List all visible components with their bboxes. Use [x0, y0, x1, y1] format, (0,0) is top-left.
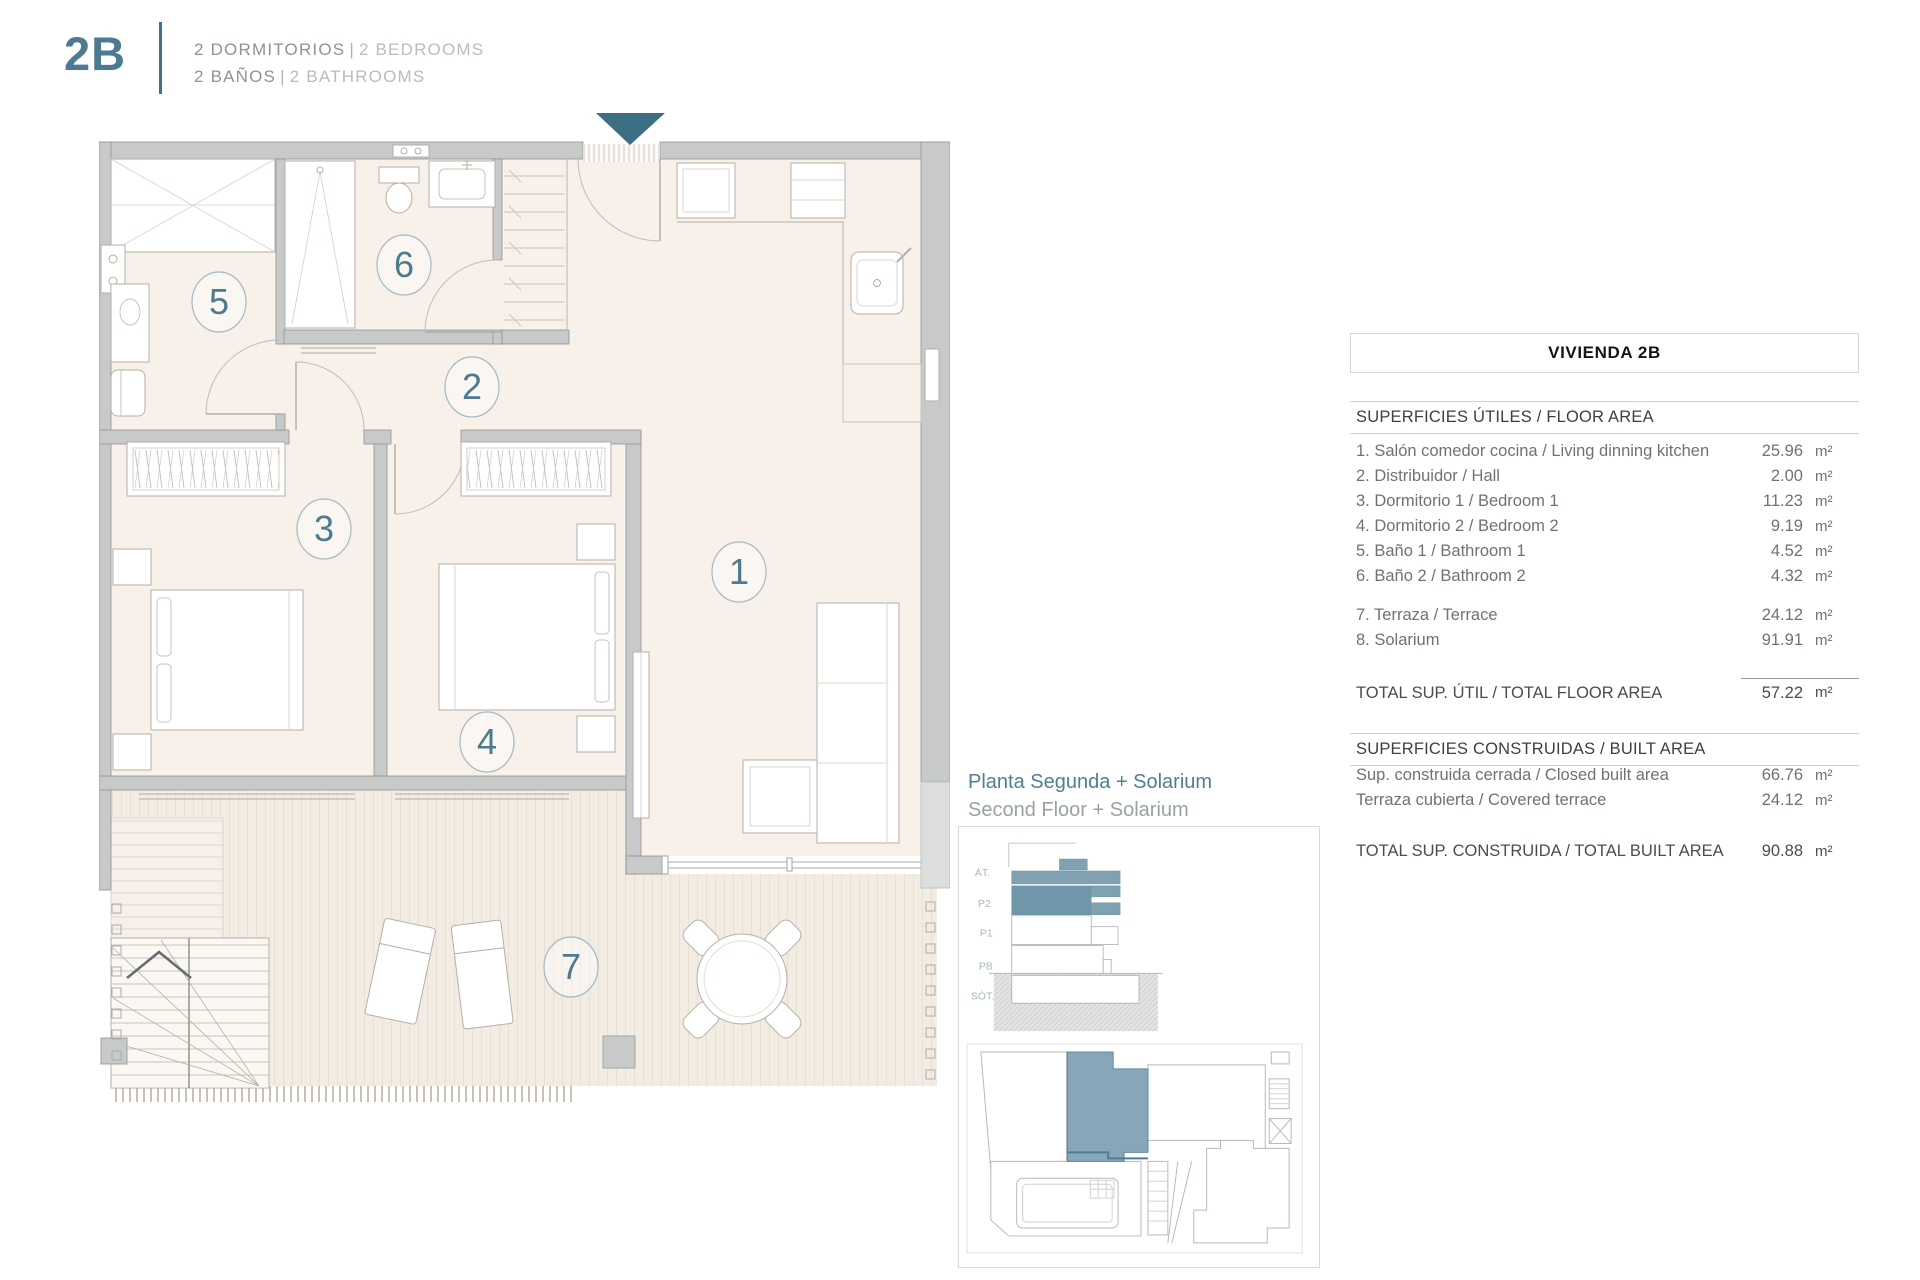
stair-core-icon [1269, 1052, 1291, 1143]
oven-icon [791, 163, 845, 218]
key-plan-title-en: Second Floor + Solarium [968, 796, 1212, 824]
bedrooms-line: 2 DORMITORIOS|2 BEDROOMS [194, 36, 484, 63]
stairs-to-solarium [111, 938, 269, 1088]
key-plan-diagrams: ÁT. P2 P1 PB SÓT. [959, 827, 1317, 1265]
table-row: 3. Dormitorio 1 / Bedroom 111.23m² [1350, 492, 1859, 517]
table-row: 2. Distribuidor / Hall2.00m² [1350, 467, 1859, 492]
section-heading-built-area: SUPERFICIES CONSTRUIDAS / BUILT AREA [1350, 733, 1859, 766]
nightstand-icon [113, 549, 151, 585]
toilet-icon [111, 370, 145, 416]
nightstand-icon [113, 734, 151, 770]
svg-text:6: 6 [394, 244, 414, 285]
unit-code: 2B [64, 26, 126, 81]
header-divider [159, 22, 162, 94]
floor-label-p2: P2 [978, 899, 991, 910]
parapet-wall [921, 782, 950, 888]
room-label-4: 4 [460, 712, 514, 772]
key-plan-title-es: Planta Segunda + Solarium [968, 768, 1212, 796]
floor-label-sotano: SÓT. [971, 989, 994, 1002]
svg-text:3: 3 [314, 508, 334, 549]
table-row: 4. Dormitorio 2 / Bedroom 29.19m² [1350, 517, 1859, 542]
section-heading-floor-area: SUPERFICIES ÚTILES / FLOOR AREA [1350, 401, 1859, 434]
bathrooms-line: 2 BAÑOS|2 BATHROOMS [194, 63, 484, 90]
svg-text:2: 2 [462, 366, 482, 407]
table-title: VIVIENDA 2B [1350, 333, 1859, 373]
nightstand-icon [577, 716, 615, 752]
toilet-icon [379, 167, 419, 183]
area-table: VIVIENDA 2B SUPERFICIES ÚTILES / FLOOR A… [1350, 333, 1859, 861]
vanity-icon [111, 284, 149, 362]
table-row: 7. Terraza / Terrace24.12m² [1350, 606, 1859, 631]
floor-plan: 1 2 3 4 5 6 7 [99, 112, 950, 1103]
terrace-table-icon [680, 917, 804, 1041]
entrance [583, 113, 665, 162]
building-section: ÁT. P2 P1 PB SÓT. [971, 843, 1163, 1031]
table-row: 8. Solarium91.91m² [1350, 631, 1859, 656]
key-plan-box: ÁT. P2 P1 PB SÓT. [958, 826, 1320, 1268]
table-row: 5. Baño 1 / Bathroom 14.52m² [1350, 542, 1859, 567]
bedroom2 [439, 442, 615, 752]
fridge-icon [677, 163, 735, 218]
floor-label-p1: P1 [980, 929, 993, 940]
total-built-area-row: TOTAL SUP. CONSTRUIDA / TOTAL BUILT AREA… [1350, 842, 1859, 861]
table-row: 1. Salón comedor cocina / Living dinning… [1350, 442, 1859, 467]
svg-text:1: 1 [729, 551, 749, 592]
total-floor-area-row: TOTAL SUP. ÚTIL / TOTAL FLOOR AREA 57.22… [1350, 678, 1859, 703]
column [603, 1036, 635, 1068]
svg-text:5: 5 [209, 281, 229, 322]
svg-text:4: 4 [477, 721, 497, 762]
highlighted-unit [1067, 1052, 1148, 1161]
floorplan-sheet: 2B 2 DORMITORIOS|2 BEDROOMS 2 BAÑOS|2 BA… [0, 0, 1920, 1280]
ottoman-icon [743, 760, 817, 833]
room-label-2: 2 [445, 357, 499, 417]
key-plan-title: Planta Segunda + Solarium Second Floor +… [968, 768, 1212, 824]
site-plan [967, 1044, 1302, 1253]
entrance-arrow-icon [596, 113, 665, 145]
svg-text:7: 7 [561, 946, 581, 987]
table-row: Terraza cubierta / Covered terrace24.12m… [1350, 791, 1859, 816]
room-label-6: 6 [377, 235, 431, 295]
table-row: Sup. construida cerrada / Closed built a… [1350, 766, 1859, 791]
floor-label-pb: PB [979, 961, 993, 972]
table-row: 6. Baño 2 / Bathroom 24.32m² [1350, 567, 1859, 592]
bed-icon [151, 590, 303, 730]
bed-icon [439, 564, 615, 710]
nightstand-icon [577, 524, 615, 560]
room-label-5: 5 [192, 272, 246, 332]
stairs-upper-flight [111, 818, 223, 938]
floor-label-atico: ÁT. [975, 866, 990, 879]
room-label-1: 1 [712, 542, 766, 602]
room-label-7: 7 [544, 937, 598, 997]
unit-summary: 2 DORMITORIOS|2 BEDROOMS 2 BAÑOS|2 BATHR… [194, 36, 484, 90]
room-label-3: 3 [297, 499, 351, 559]
highlighted-floors [1012, 859, 1120, 915]
interior-floor [111, 159, 925, 856]
